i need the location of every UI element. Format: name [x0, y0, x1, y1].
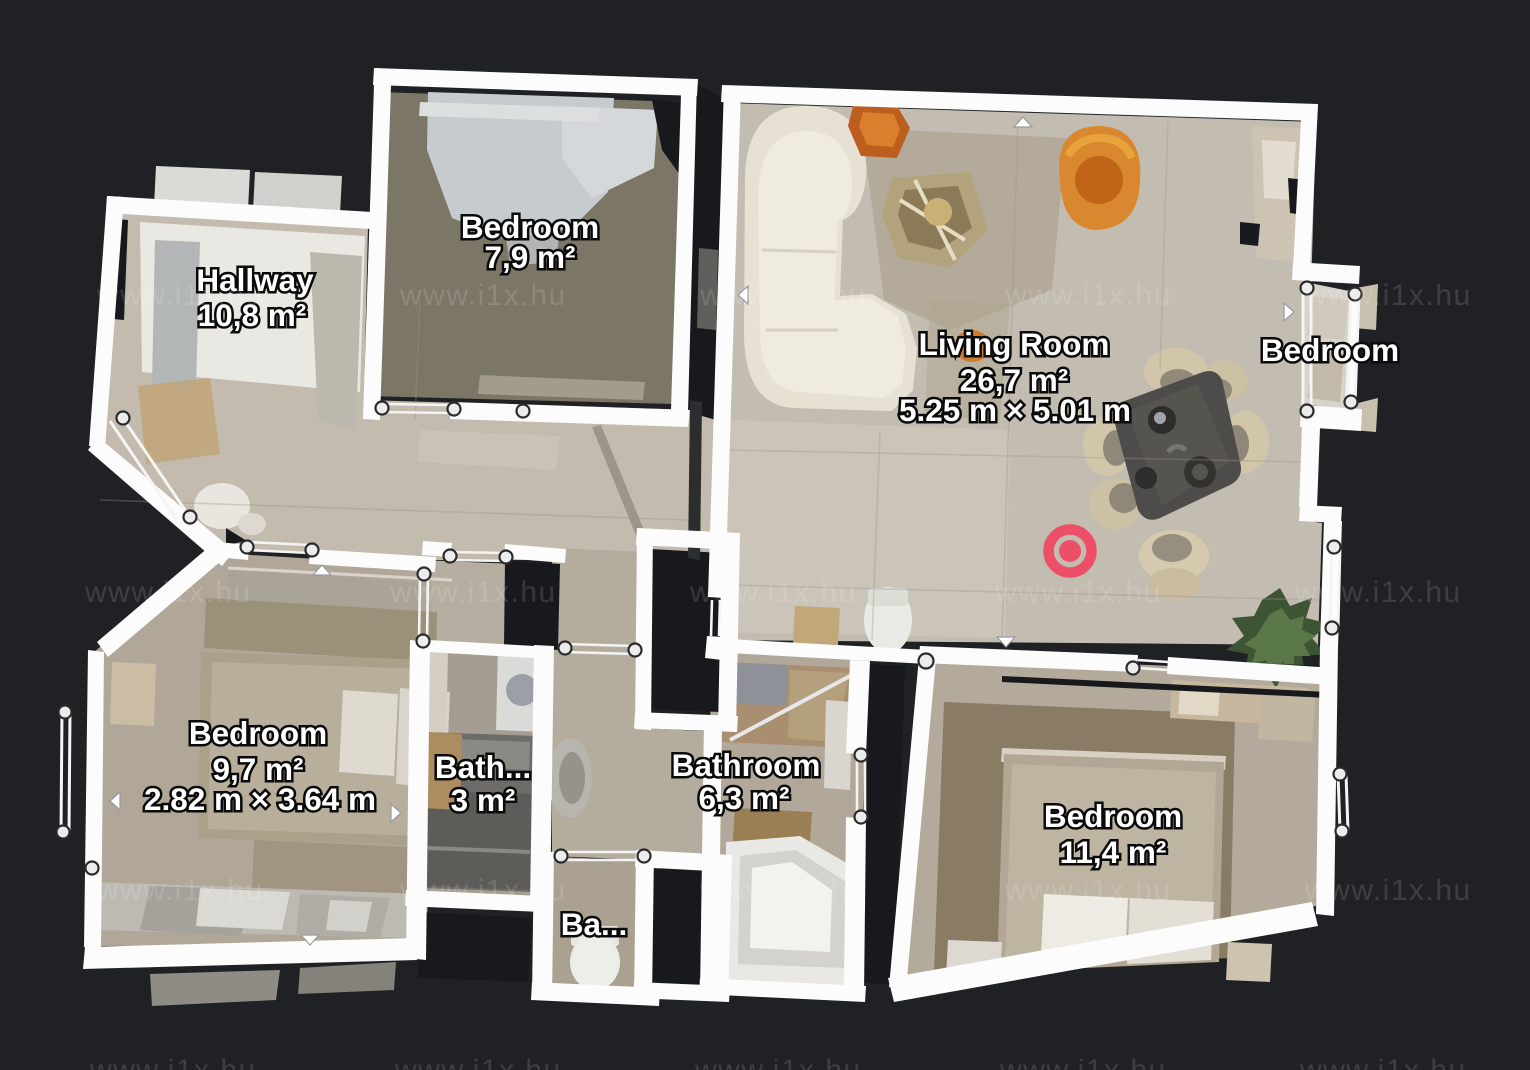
svg-text:www.i1x.hu: www.i1x.hu: [389, 576, 557, 609]
svg-text:Bedroom: Bedroom: [1261, 332, 1399, 368]
svg-text:2.82 m × 3.64 m: 2.82 m × 3.64 m: [144, 781, 376, 817]
svg-text:www.i1x.hu: www.i1x.hu: [1299, 1054, 1467, 1070]
svg-text:www.i1x.hu: www.i1x.hu: [699, 279, 867, 312]
svg-text:www.i1x.hu: www.i1x.hu: [699, 874, 867, 907]
svg-text:www.i1x.hu: www.i1x.hu: [84, 576, 252, 609]
svg-text:www.i1x.hu: www.i1x.hu: [394, 1054, 562, 1070]
svg-text:5.25 m × 5.01 m: 5.25 m × 5.01 m: [899, 392, 1131, 428]
svg-text:Living Room: Living Room: [919, 326, 1110, 362]
svg-text:3 m²: 3 m²: [451, 782, 516, 818]
svg-text:www.i1x.hu: www.i1x.hu: [89, 1054, 257, 1070]
svg-text:www.i1x.hu: www.i1x.hu: [689, 576, 857, 609]
svg-text:www.i1x.hu: www.i1x.hu: [994, 576, 1162, 609]
svg-text:Ba...: Ba...: [561, 906, 628, 942]
svg-text:www.i1x.hu: www.i1x.hu: [399, 279, 567, 312]
svg-text:www.i1x.hu: www.i1x.hu: [1304, 874, 1472, 907]
svg-text:www.i1x.hu: www.i1x.hu: [694, 1054, 862, 1070]
svg-text:Bedroom: Bedroom: [1044, 798, 1182, 834]
svg-text:www.i1x.hu: www.i1x.hu: [1004, 279, 1172, 312]
svg-text:www.i1x.hu: www.i1x.hu: [999, 1054, 1167, 1070]
svg-text:Bath...: Bath...: [435, 749, 531, 785]
svg-text:Bathroom: Bathroom: [672, 747, 821, 783]
svg-text:www.i1x.hu: www.i1x.hu: [1294, 576, 1462, 609]
svg-text:www.i1x.hu: www.i1x.hu: [1004, 874, 1172, 907]
svg-text:6,3 m²: 6,3 m²: [698, 780, 789, 816]
svg-text:www.i1x.hu: www.i1x.hu: [1304, 279, 1472, 312]
svg-text:www.i1x.hu: www.i1x.hu: [399, 874, 567, 907]
svg-text:7,9 m²: 7,9 m²: [484, 239, 575, 275]
svg-text:www.i1x.hu: www.i1x.hu: [96, 279, 264, 312]
svg-text:Bedroom: Bedroom: [189, 715, 327, 751]
svg-text:www.i1x.hu: www.i1x.hu: [96, 874, 264, 907]
svg-text:11,4 m²: 11,4 m²: [1060, 834, 1167, 870]
